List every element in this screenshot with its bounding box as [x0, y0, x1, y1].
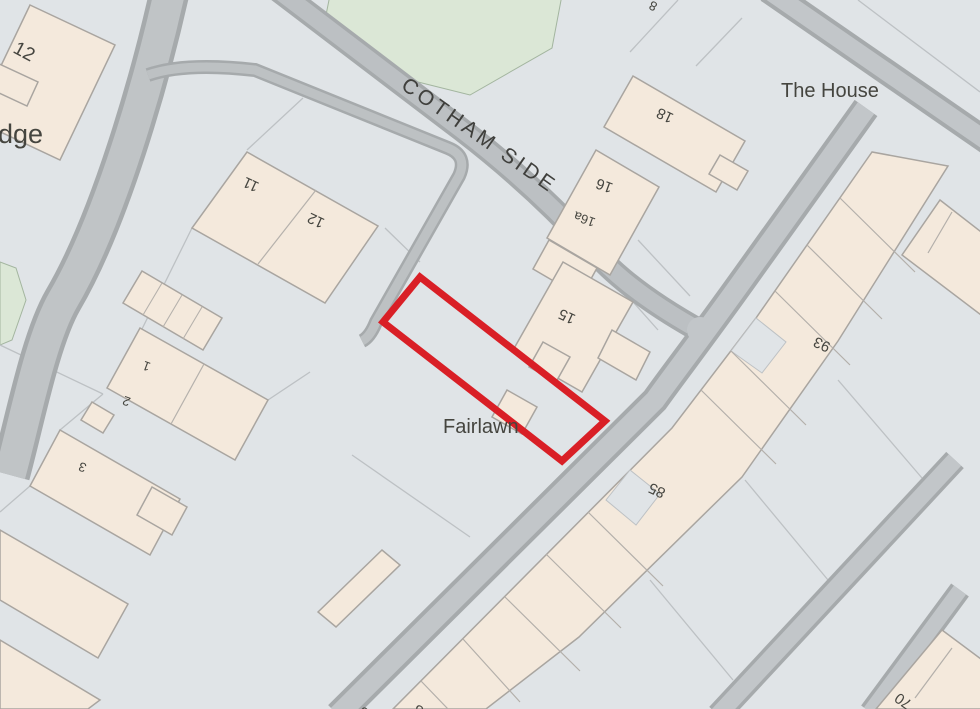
label-fairlawn: Fairlawn	[443, 416, 519, 438]
road-junction	[687, 317, 713, 343]
site-location-map: COTHAM SIDE The House Fairlawn dge 12 11…	[0, 0, 980, 709]
label-the-house: The House	[781, 80, 879, 102]
label-lodge-partial: dge	[0, 119, 43, 149]
map-canvas: COTHAM SIDE The House Fairlawn dge 12 11…	[0, 0, 980, 709]
